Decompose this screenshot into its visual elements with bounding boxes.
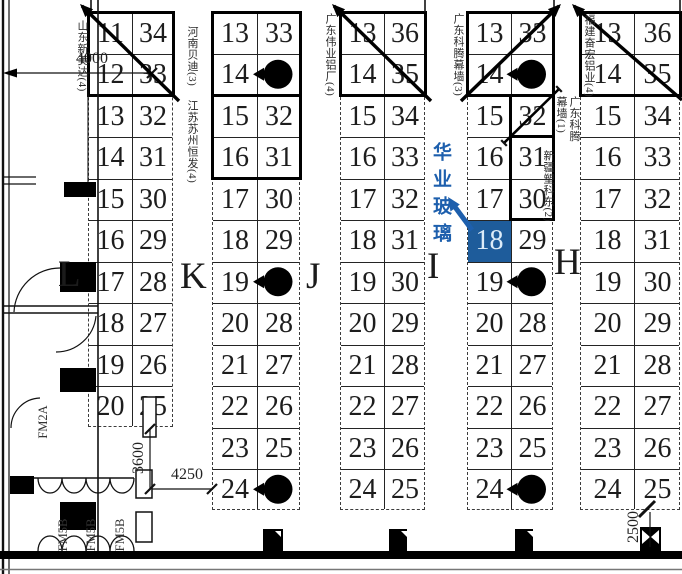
booth-J-22[interactable]: 22	[341, 387, 384, 429]
booth-K-27[interactable]: 27	[257, 345, 301, 387]
booth-J-13[interactable]: 13	[341, 13, 384, 55]
zone-letter-K: K	[180, 258, 207, 295]
booth-H-30[interactable]: 30	[634, 262, 681, 304]
booth-H-18[interactable]: 18	[581, 221, 634, 263]
door-label-fm5b: FM5B	[82, 504, 100, 566]
vendor-label-jssz: 江苏苏州恒发(4)	[184, 100, 198, 192]
booth-J-27[interactable]: 27	[384, 387, 426, 429]
booth-H-17[interactable]: 17	[581, 179, 634, 221]
booth-H-19[interactable]: 19	[581, 262, 634, 304]
booth-L-20[interactable]: 20	[89, 387, 132, 429]
booth-K-29[interactable]: 29	[257, 221, 301, 263]
booth-group-H: 1336143515341633173218311930202921282227…	[580, 12, 680, 510]
pillar-square	[389, 529, 407, 552]
booth-H-23[interactable]: 23	[581, 428, 634, 470]
vendor-label-hnbd: 河南贝迪(3)	[184, 26, 198, 104]
dimension-4250: 4250	[156, 466, 218, 484]
booth-K-21[interactable]: 21	[213, 345, 257, 387]
booth-J-31[interactable]: 31	[384, 221, 426, 263]
dimension-3600: 3600	[130, 427, 148, 489]
dim-arrow	[3, 69, 17, 78]
door-label-fm5b: FM5B	[54, 504, 72, 566]
booth-L-32[interactable]: 32	[132, 96, 174, 138]
booth-K-19[interactable]: 19	[213, 262, 257, 304]
exhibitor-callout: 华业玻璃	[427, 142, 454, 250]
booth-cell-pillar	[257, 262, 301, 304]
booth-I-26[interactable]: 26	[511, 387, 554, 429]
pillar-flag	[642, 530, 650, 544]
booth-J-20[interactable]: 20	[341, 304, 384, 346]
booth-H-35[interactable]: 35	[634, 55, 681, 97]
booth-L-31[interactable]: 31	[132, 138, 174, 180]
booth-K-25[interactable]: 25	[257, 428, 301, 470]
booth-H-36[interactable]: 36	[634, 13, 681, 55]
booth-H-28[interactable]: 28	[634, 345, 681, 387]
booth-L-14[interactable]: 14	[89, 138, 132, 180]
booth-H-27[interactable]: 27	[634, 387, 681, 429]
booth-J-33[interactable]: 33	[384, 138, 426, 180]
door-label-fm5b: FM5B	[111, 504, 129, 566]
booth-L-18[interactable]: 18	[89, 304, 132, 346]
dimension-4000: 4000	[54, 50, 130, 68]
vendor-label-xjsk: 新疆塑科东(2)	[540, 150, 554, 238]
booth-J-24[interactable]: 24	[341, 470, 384, 512]
booth-L-13[interactable]: 13	[89, 96, 132, 138]
booth-H-31[interactable]: 31	[634, 221, 681, 263]
booth-H-33[interactable]: 33	[634, 138, 681, 180]
booth-I-15[interactable]: 15	[468, 96, 511, 138]
pillar-flag	[651, 530, 659, 544]
booth-I-14[interactable]: 14	[468, 55, 511, 97]
vendor-label-gdkt3: 广东科腾幕墙(3)	[450, 13, 464, 99]
booth-J-25[interactable]: 25	[384, 470, 426, 512]
zone-letter-I: I	[427, 248, 439, 285]
zone-letter-H: H	[554, 244, 581, 281]
booth-J-19[interactable]: 19	[341, 262, 384, 304]
door-arc	[14, 268, 60, 312]
booth-cell-pillar	[511, 262, 554, 304]
booth-I-18-highlight[interactable]: 18	[468, 221, 511, 263]
booth-H-21[interactable]: 21	[581, 345, 634, 387]
booth-H-22[interactable]: 22	[581, 387, 634, 429]
booth-J-36[interactable]: 36	[384, 13, 426, 55]
booth-K-13[interactable]: 13	[213, 13, 257, 55]
booth-group-J: 1336143515341633173218311930202921282227…	[340, 12, 425, 510]
door-arcs	[38, 478, 134, 493]
booth-L-15[interactable]: 15	[89, 179, 132, 221]
booth-L-16[interactable]: 16	[89, 221, 132, 263]
exhibition-floorplan: 1134123313321431153016291728182719262025…	[0, 0, 682, 574]
door-jamb	[136, 512, 152, 542]
booth-K-14[interactable]: 14	[213, 55, 257, 97]
booth-K-32[interactable]: 32	[257, 96, 301, 138]
pillar-square	[263, 529, 283, 552]
zone-letter-J: J	[306, 258, 320, 295]
door-label-fm2a: FM2A	[34, 391, 52, 453]
booth-H-16[interactable]: 16	[581, 138, 634, 180]
booth-K-26[interactable]: 26	[257, 387, 301, 429]
vendor-label-fjfh: 福建奋宏铝业(4)	[581, 14, 595, 106]
booth-K-28[interactable]: 28	[257, 304, 301, 346]
booth-K-23[interactable]: 23	[213, 428, 257, 470]
booth-L-34[interactable]: 34	[132, 13, 174, 55]
booth-I-22[interactable]: 22	[468, 387, 511, 429]
booth-J-29[interactable]: 29	[384, 304, 426, 346]
booth-I-13[interactable]: 13	[468, 13, 511, 55]
booth-cell-pillar	[511, 470, 554, 512]
booth-L-17[interactable]: 17	[89, 262, 132, 304]
booth-cell-pillar	[511, 55, 554, 97]
pillar-flag	[275, 531, 281, 537]
booth-group-L: 1134123313321431153016291728182719262025	[88, 12, 173, 427]
booth-J-23[interactable]: 23	[341, 428, 384, 470]
booth-I-27[interactable]: 27	[511, 345, 554, 387]
booth-J-28[interactable]: 28	[384, 345, 426, 387]
booth-J-17[interactable]: 17	[341, 179, 384, 221]
booth-I-23[interactable]: 23	[468, 428, 511, 470]
booth-H-32[interactable]: 32	[634, 179, 681, 221]
booth-I-33[interactable]: 33	[511, 13, 554, 55]
booth-L-19[interactable]: 19	[89, 345, 132, 387]
booth-I-32[interactable]: 32	[511, 96, 554, 138]
zone-letter-L: L	[58, 256, 81, 293]
booth-L-28[interactable]: 28	[132, 262, 174, 304]
booth-J-14[interactable]: 14	[341, 55, 384, 97]
booth-group-I: 1333141532163117301829192028212722262325…	[467, 12, 553, 510]
booth-K-20[interactable]: 20	[213, 304, 257, 346]
booth-K-22[interactable]: 22	[213, 387, 257, 429]
booth-J-32[interactable]: 32	[384, 179, 426, 221]
booth-group-K: 1333141532163117301829192028212722262325…	[212, 12, 300, 510]
booth-L-26[interactable]: 26	[132, 345, 174, 387]
booth-K-17[interactable]: 17	[213, 179, 257, 221]
booth-J-34[interactable]: 34	[384, 96, 426, 138]
pillar-flag	[527, 531, 533, 537]
booth-K-18[interactable]: 18	[213, 221, 257, 263]
booth-L-27[interactable]: 27	[132, 304, 174, 346]
booth-J-15[interactable]: 15	[341, 96, 384, 138]
booth-I-28[interactable]: 28	[511, 304, 554, 346]
booth-K-16[interactable]: 16	[213, 138, 257, 180]
dimension-2500: 2500	[625, 496, 643, 558]
booth-I-16[interactable]: 16	[468, 138, 511, 180]
booth-J-30[interactable]: 30	[384, 262, 426, 304]
booth-J-21[interactable]: 21	[341, 345, 384, 387]
booth-L-29[interactable]: 29	[132, 221, 174, 263]
booth-I-21[interactable]: 21	[468, 345, 511, 387]
booth-cell-pillar	[257, 470, 301, 512]
booth-J-18[interactable]: 18	[341, 221, 384, 263]
booth-L-11[interactable]: 11	[89, 13, 132, 55]
booth-H-34[interactable]: 34	[634, 96, 681, 138]
booth-I-25[interactable]: 25	[511, 428, 554, 470]
booth-cell-pillar	[257, 55, 301, 97]
booth-I-20[interactable]: 20	[468, 304, 511, 346]
booth-I-19[interactable]: 19	[468, 262, 511, 304]
booth-H-26[interactable]: 26	[634, 428, 681, 470]
pillar-square	[640, 527, 661, 554]
booth-I-17[interactable]: 17	[468, 179, 511, 221]
dim-tick	[556, 86, 562, 92]
booth-K-31[interactable]: 31	[257, 138, 301, 180]
booth-H-29[interactable]: 29	[634, 304, 681, 346]
vendor-label-gdwy: 广东伟业铝厂(4)	[322, 13, 336, 99]
booth-K-33[interactable]: 33	[257, 13, 301, 55]
pillar-square	[515, 529, 533, 552]
booth-J-35[interactable]: 35	[384, 55, 426, 97]
pillar-square	[10, 476, 34, 494]
pillar-flag	[401, 531, 407, 537]
booth-J-26[interactable]: 26	[384, 428, 426, 470]
booth-L-30[interactable]: 30	[132, 179, 174, 221]
booth-L-33[interactable]: 33	[132, 55, 174, 97]
booth-I-24[interactable]: 24	[468, 470, 511, 512]
vendor-label-gdkt1: 广东科腾幕墙(1)	[552, 96, 580, 146]
bottom-wall	[0, 551, 682, 559]
booth-H-20[interactable]: 20	[581, 304, 634, 346]
booth-J-16[interactable]: 16	[341, 138, 384, 180]
booth-K-15[interactable]: 15	[213, 96, 257, 138]
booth-K-24[interactable]: 24	[213, 470, 257, 512]
booth-K-30[interactable]: 30	[257, 179, 301, 221]
booth-L-25[interactable]: 25	[132, 387, 174, 429]
